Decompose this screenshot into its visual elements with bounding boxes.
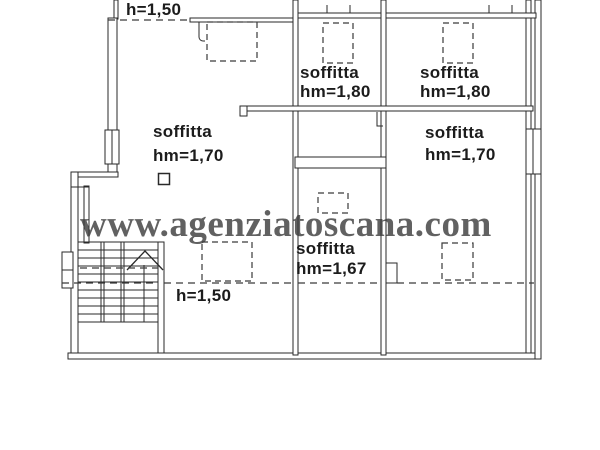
height-label-bottom: h=1,50 bbox=[176, 287, 231, 304]
room-height: hm=1,80 bbox=[420, 82, 491, 101]
room-label-attic-upper-right: soffitta hm=1,80 bbox=[420, 63, 491, 101]
room-name: soffitta bbox=[420, 63, 491, 82]
room-height: hm=1,70 bbox=[153, 144, 224, 168]
room-height: hm=1,67 bbox=[296, 259, 367, 279]
room-name: soffitta bbox=[425, 122, 496, 144]
room-name: soffitta bbox=[300, 63, 371, 82]
roof-window-top-left bbox=[207, 22, 257, 61]
watermark: www.agenziatoscana.com bbox=[80, 203, 492, 246]
room-label-attic-upper-left: soffitta hm=1,80 bbox=[300, 63, 371, 101]
window-right-wall bbox=[526, 129, 541, 174]
height-label-top: h=1,50 bbox=[126, 1, 181, 18]
column-marker bbox=[159, 174, 170, 185]
roof-window-bottom bbox=[202, 242, 252, 281]
room-height: hm=1,80 bbox=[300, 82, 371, 101]
floorplan-image: h=1,50 soffitta hm=1,80 soffitta hm=1,80… bbox=[0, 0, 600, 450]
room-name: soffitta bbox=[153, 120, 224, 144]
outer-walls bbox=[68, 0, 541, 359]
chimney-room-180-right bbox=[443, 23, 473, 63]
window-left-wall bbox=[105, 130, 119, 164]
chimney-room-170-right bbox=[442, 243, 473, 280]
staircase bbox=[78, 242, 163, 322]
room-label-attic-left: soffitta hm=1,70 bbox=[153, 120, 224, 168]
room-height: hm=1,70 bbox=[425, 144, 496, 166]
room-label-attic-right: soffitta hm=1,70 bbox=[425, 122, 496, 166]
chimney-room-180-left bbox=[323, 23, 353, 63]
